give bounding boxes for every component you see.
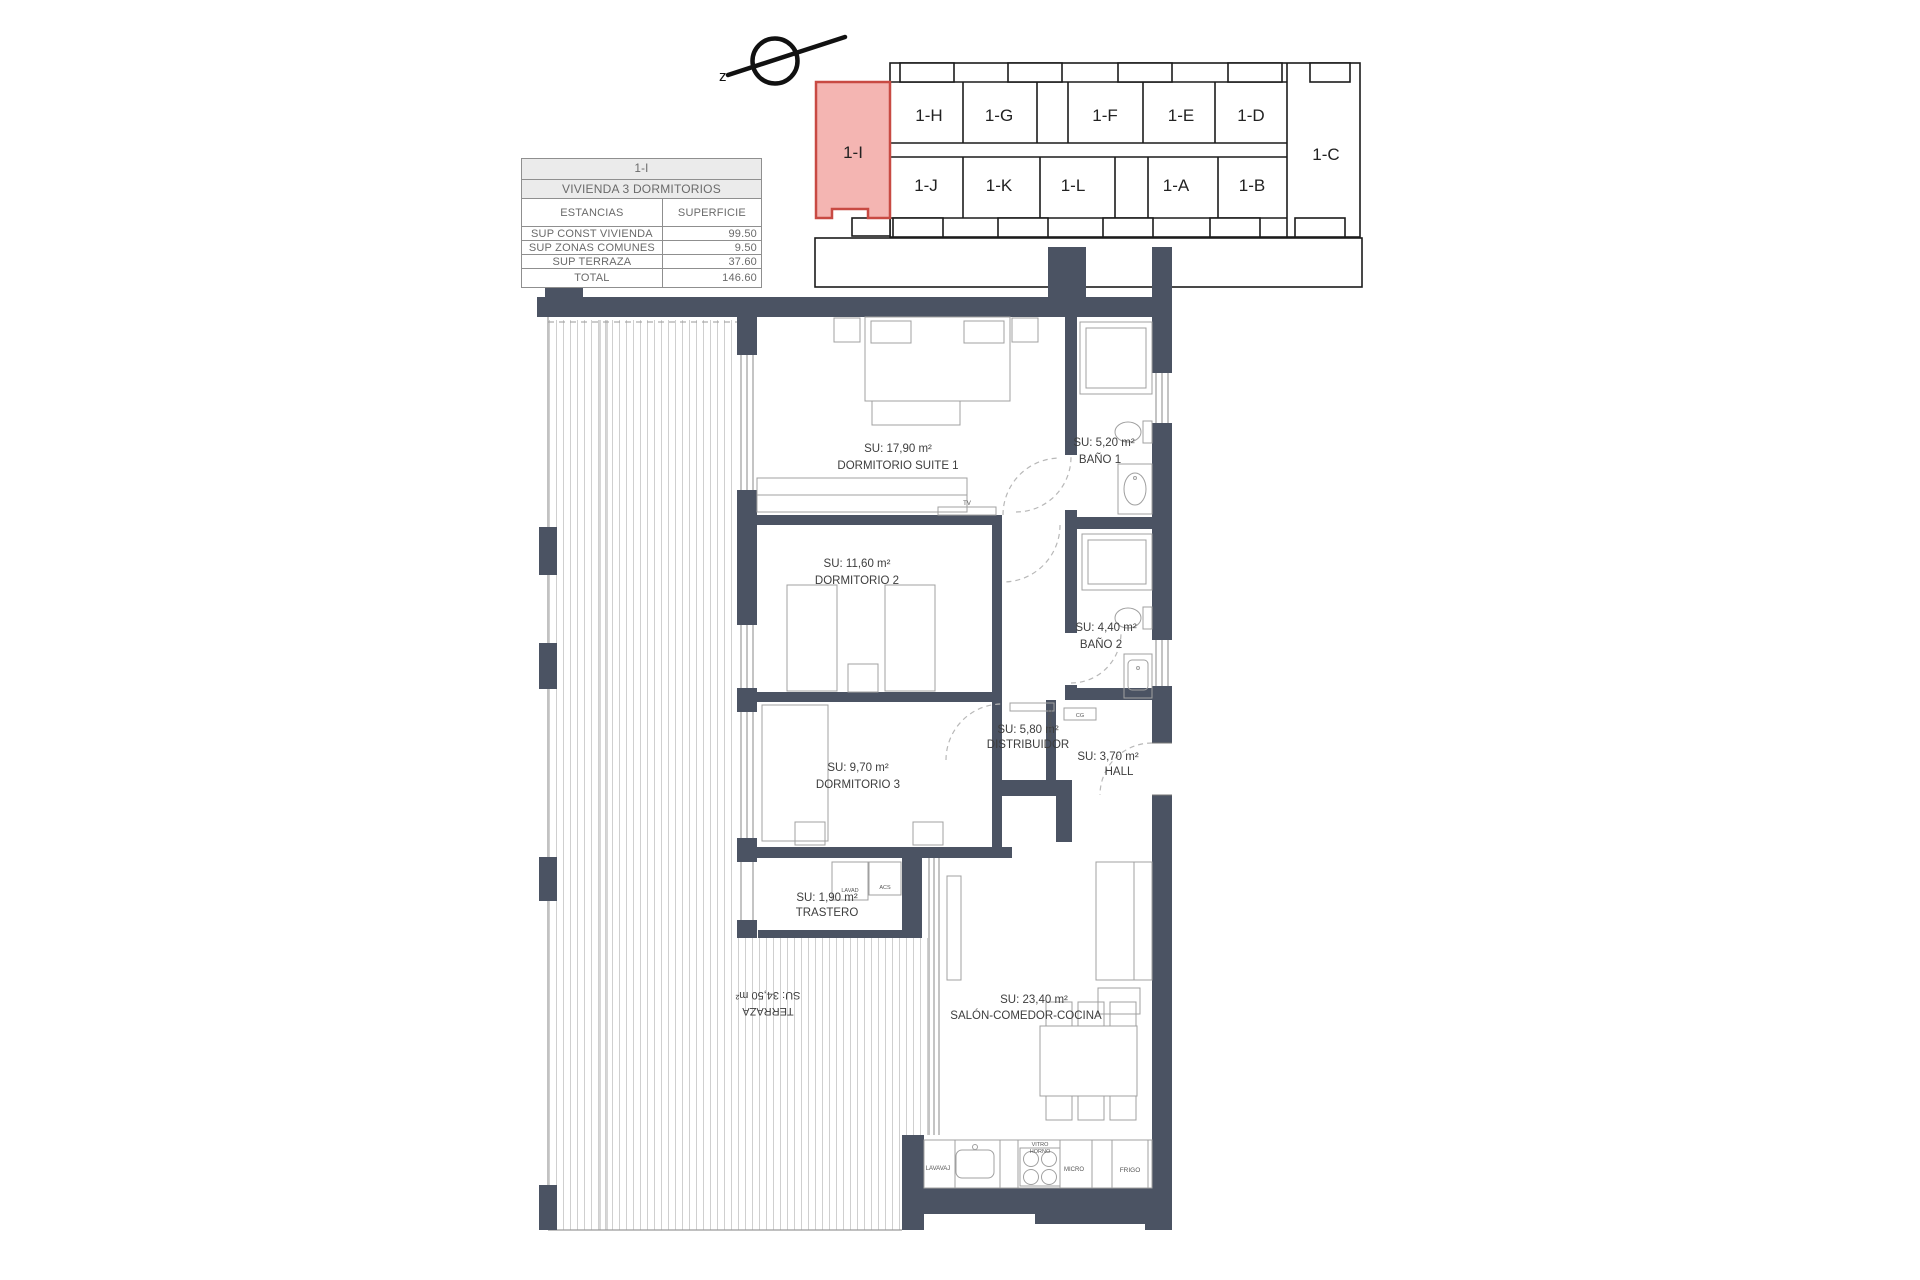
- vitro-label: VITRO: [1032, 1142, 1050, 1148]
- keyplan-label-1c: 1-C: [1312, 145, 1339, 164]
- floor-plan-sheet: { "summary_table": { "unit": "1-I", "tit…: [0, 0, 1920, 1280]
- entry-door-opening: [1152, 743, 1172, 795]
- nightstand-icon: [795, 822, 825, 845]
- nightstand-icon: [834, 318, 860, 342]
- chair-icon: [1078, 1096, 1104, 1120]
- terraza-area: [548, 320, 928, 1230]
- keyplan-label-1e: 1-E: [1168, 106, 1194, 125]
- keyplan-garage-block: [815, 238, 1362, 287]
- room-label-salon-name: SALÓN-COMEDOR-COCINA: [950, 1009, 1102, 1022]
- vanity-icon: [1118, 464, 1152, 514]
- bed-icon: [865, 317, 1010, 401]
- bench-icon: [872, 401, 960, 425]
- door-arc-dorm2: [1003, 525, 1060, 582]
- keyplan-label-1g: 1-G: [985, 106, 1013, 125]
- plan-drawing: z: [0, 0, 1920, 1280]
- nightstand-icon: [1012, 318, 1038, 342]
- sofa-icon: [1096, 862, 1152, 980]
- key-plan: [815, 63, 1362, 287]
- room-label-suite1-name: DORMITORIO SUITE 1: [837, 460, 958, 472]
- chair-icon: [1046, 1096, 1072, 1120]
- room-label-salon-area: SU: 23,40 m²: [1000, 994, 1068, 1006]
- horno-label: HORNO: [1030, 1149, 1051, 1155]
- pillow-icon: [871, 321, 911, 343]
- lavavajillas-label: LAVAVAJ: [926, 1166, 951, 1172]
- keyplan-building-outline: [890, 63, 1360, 237]
- pillow-icon: [964, 321, 1004, 343]
- row-label: SUP ZONAS COMUNES: [522, 241, 662, 254]
- nightstand-icon: [848, 664, 878, 692]
- keyplan-label-1j: 1-J: [914, 176, 938, 195]
- frigo-label: FRIGO: [1120, 1167, 1141, 1174]
- room-label-trastero-name: TRASTERO: [796, 907, 859, 919]
- room-label-bano2-name: BAÑO 2: [1080, 638, 1122, 651]
- tv-unit-icon: [947, 876, 961, 980]
- col-header-superficie: SUPERFICIE: [662, 199, 761, 226]
- toilet-icon: [1143, 607, 1152, 629]
- table-unit-header: 1-I: [522, 159, 761, 179]
- room-label-dorm3-name: DORMITORIO 3: [816, 779, 900, 791]
- row-label: SUP CONST VIVIENDA: [522, 227, 662, 240]
- table-row: SUP ZONAS COMUNES 9.50: [522, 240, 761, 254]
- sink-icon: [1128, 660, 1148, 690]
- sink-icon: [1124, 473, 1146, 505]
- unit-summary-table: 1-I VIVIENDA 3 DORMITORIOS ESTANCIAS SUP…: [521, 158, 762, 288]
- row-value: 37.60: [662, 255, 761, 268]
- room-label-bano2-area: SU: 4,40 m²: [1075, 622, 1137, 634]
- table-column-headers: ESTANCIAS SUPERFICIE: [522, 198, 761, 226]
- north-arrow-icon: z: [719, 37, 845, 85]
- row-value: 146.60: [662, 269, 761, 287]
- room-label-dorm2-area: SU: 11,60 m²: [824, 558, 891, 570]
- chair-icon: [1110, 1096, 1136, 1120]
- table-row: SUP CONST VIVIENDA 99.50: [522, 226, 761, 240]
- room-label-hall-name: HALL: [1105, 766, 1134, 778]
- bed-icon: [762, 705, 828, 841]
- room-label-suite1-area: SU: 17,90 m²: [864, 443, 932, 455]
- unit-id: 1-I: [634, 163, 648, 175]
- keyplan-label-1l: 1-L: [1061, 176, 1086, 195]
- shower-icon: [1080, 322, 1152, 394]
- door-arc-suite1: [1003, 458, 1060, 515]
- table-row: TOTAL 146.60: [522, 268, 761, 287]
- table-title: VIVIENDA 3 DORMITORIOS: [562, 182, 721, 196]
- keyplan-label-1k: 1-K: [986, 176, 1013, 195]
- bed-icon: [885, 585, 935, 691]
- table-row: SUP TERRAZA 37.60: [522, 254, 761, 268]
- dining-table-icon: [1040, 1026, 1137, 1096]
- key-plan-labels: 1-I 1-H 1-G 1-F 1-E 1-D 1-C 1-J 1-K 1-L …: [843, 106, 1340, 195]
- north-label: z: [719, 68, 727, 85]
- room-label-dorm2-name: DORMITORIO 2: [815, 575, 899, 587]
- shower-icon: [1082, 534, 1152, 590]
- row-value: 9.50: [662, 241, 761, 254]
- floor-plan: SU: 17,90 m² DORMITORIO SUITE 1 SU: 5,20…: [537, 247, 1172, 1230]
- bed-icon: [787, 585, 837, 691]
- room-label-bano1-name: BAÑO 1: [1079, 453, 1121, 466]
- room-label-dorm3-area: SU: 9,70 m²: [827, 762, 889, 774]
- keyplan-label-1b: 1-B: [1239, 176, 1265, 195]
- keyplan-label-1d: 1-D: [1237, 106, 1264, 125]
- col-header-estancias: ESTANCIAS: [522, 199, 662, 226]
- row-value: 99.50: [662, 227, 761, 240]
- keyplan-label-1i: 1-I: [843, 143, 863, 162]
- door-arc-bano1: [1016, 457, 1071, 512]
- kitchen-sink-icon: [956, 1150, 994, 1178]
- row-label: SUP TERRAZA: [522, 255, 662, 268]
- room-label-hall-area: SU: 3,70 m²: [1077, 751, 1139, 763]
- keyplan-label-1f: 1-F: [1092, 106, 1118, 125]
- nightstand-icon: [913, 822, 943, 845]
- room-label-bano1-area: SU: 5,20 m²: [1073, 437, 1135, 449]
- lavadora-label: LAVAD: [841, 888, 858, 894]
- table-title-header: VIVIENDA 3 DORMITORIOS: [522, 179, 761, 198]
- interfono-label: INTERFONO: [1048, 709, 1054, 739]
- keyplan-label-1a: 1-A: [1163, 176, 1190, 195]
- room-label-terraza-name: TERRAZA: [742, 1005, 794, 1017]
- acs-label: ACS: [879, 885, 891, 891]
- room-label-terraza-area: SU: 34,50 m²: [735, 989, 800, 1001]
- micro-label: MICRO: [1064, 1167, 1084, 1173]
- cg-label: CG: [1076, 713, 1084, 719]
- keyplan-facade-tabs: [852, 63, 1350, 237]
- keyplan-label-1h: 1-H: [915, 106, 942, 125]
- room-label-distribuidor-name: DISTRIBUIDOR: [987, 739, 1069, 751]
- row-label: TOTAL: [522, 269, 662, 287]
- tv-label: TV: [963, 501, 971, 507]
- toilet-icon: [1143, 421, 1152, 443]
